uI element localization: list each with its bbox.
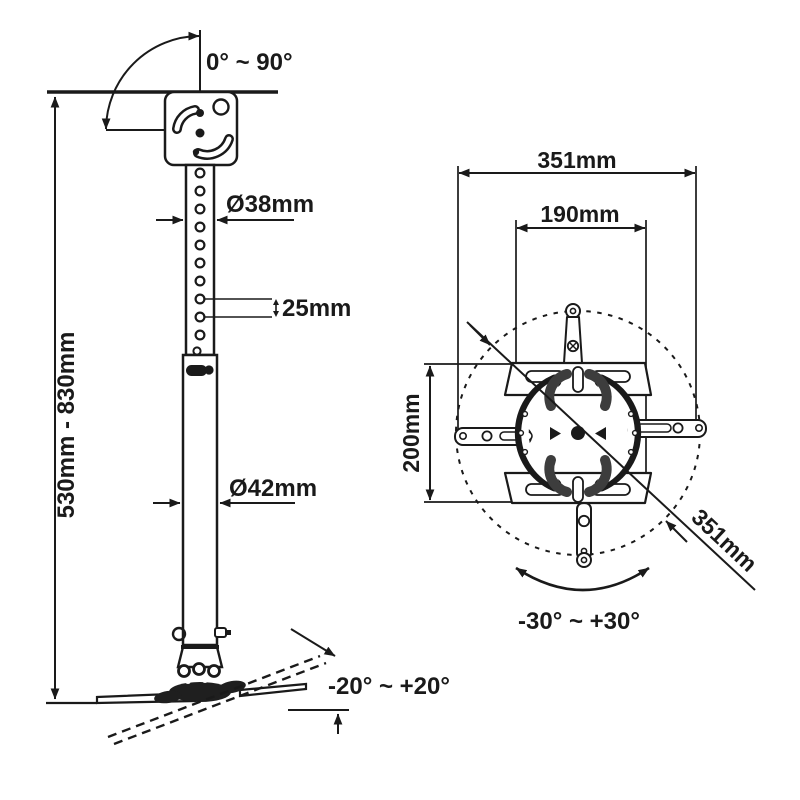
outer-width-label: 351mm <box>537 147 616 173</box>
center-pivot <box>571 426 585 440</box>
upper-arm <box>564 304 582 363</box>
height-range-label: 530mm - 830mm <box>53 332 80 519</box>
plate-height-label: 200mm <box>398 393 424 472</box>
clamp-slot <box>186 365 207 376</box>
lower-pole-diameter-label: Ø42mm <box>229 475 317 502</box>
hole-spacing-label: 25mm <box>282 295 351 322</box>
diagram-canvas: 530mm - 830mm 0° ~ 90° <box>0 0 800 800</box>
plate-tilt-range-label: -20° ~ +20° <box>328 673 450 700</box>
locking-screw <box>215 628 226 637</box>
upper-pole <box>186 165 214 355</box>
plate-hole <box>214 100 229 115</box>
ceiling-mount-technical-drawing: 530mm - 830mm 0° ~ 90° <box>0 0 800 800</box>
inner-width-label: 190mm <box>540 201 619 227</box>
upper-pole-diameter-label: Ø38mm <box>226 191 314 218</box>
tilt-range-label: 0° ~ 90° <box>206 49 293 76</box>
lower-pole <box>183 355 217 645</box>
ceiling-mount-plate <box>165 92 237 165</box>
pivot-bolt <box>196 129 205 138</box>
rotation-range-label: -30° ~ +30° <box>518 608 640 635</box>
bottom-bracket-plate <box>505 473 651 503</box>
lower-arm <box>577 503 591 567</box>
